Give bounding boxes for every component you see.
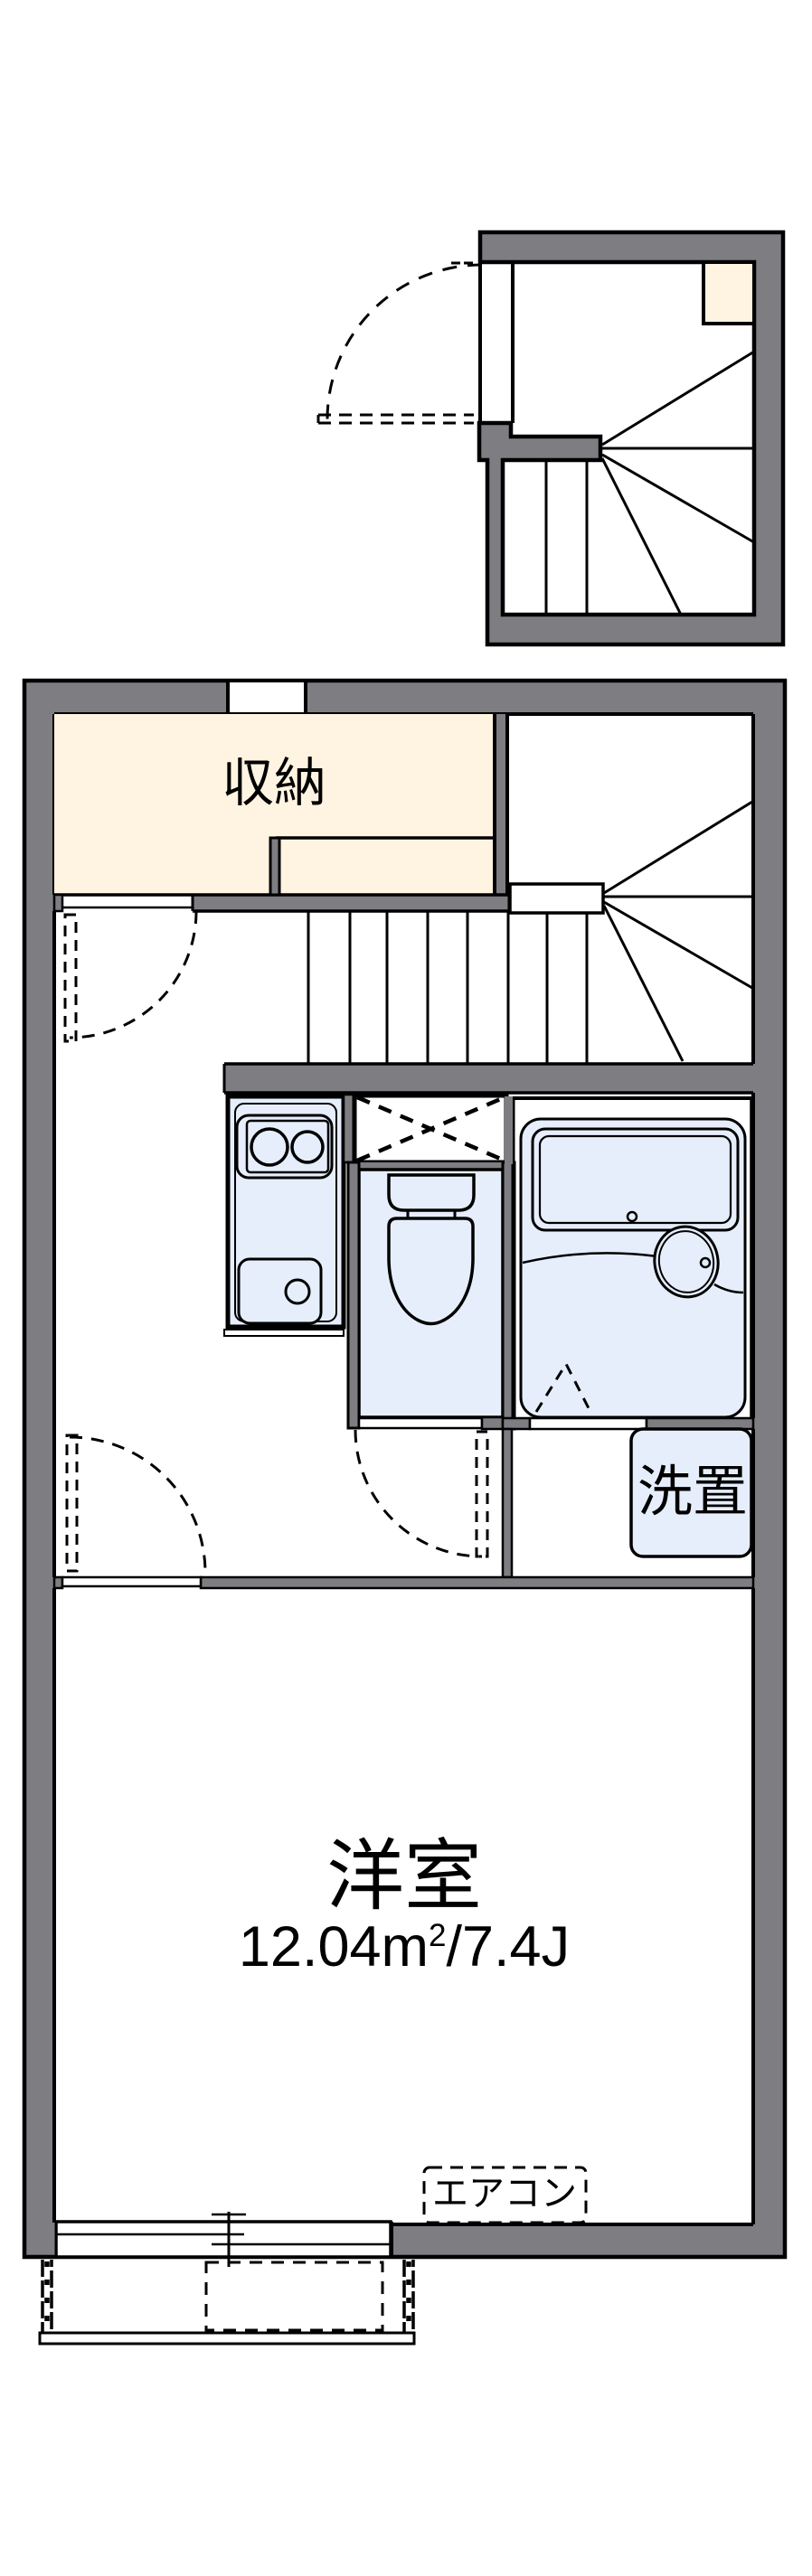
svg-text:洋室: 洋室 <box>326 1833 482 1920</box>
svg-text:収納: 収納 <box>222 754 326 813</box>
svg-text:12.04m2/7.4J: 12.04m2/7.4J <box>239 1915 570 1979</box>
svg-text:洗置: 洗置 <box>637 1461 748 1522</box>
svg-text:エアコン: エアコン <box>432 2174 577 2214</box>
